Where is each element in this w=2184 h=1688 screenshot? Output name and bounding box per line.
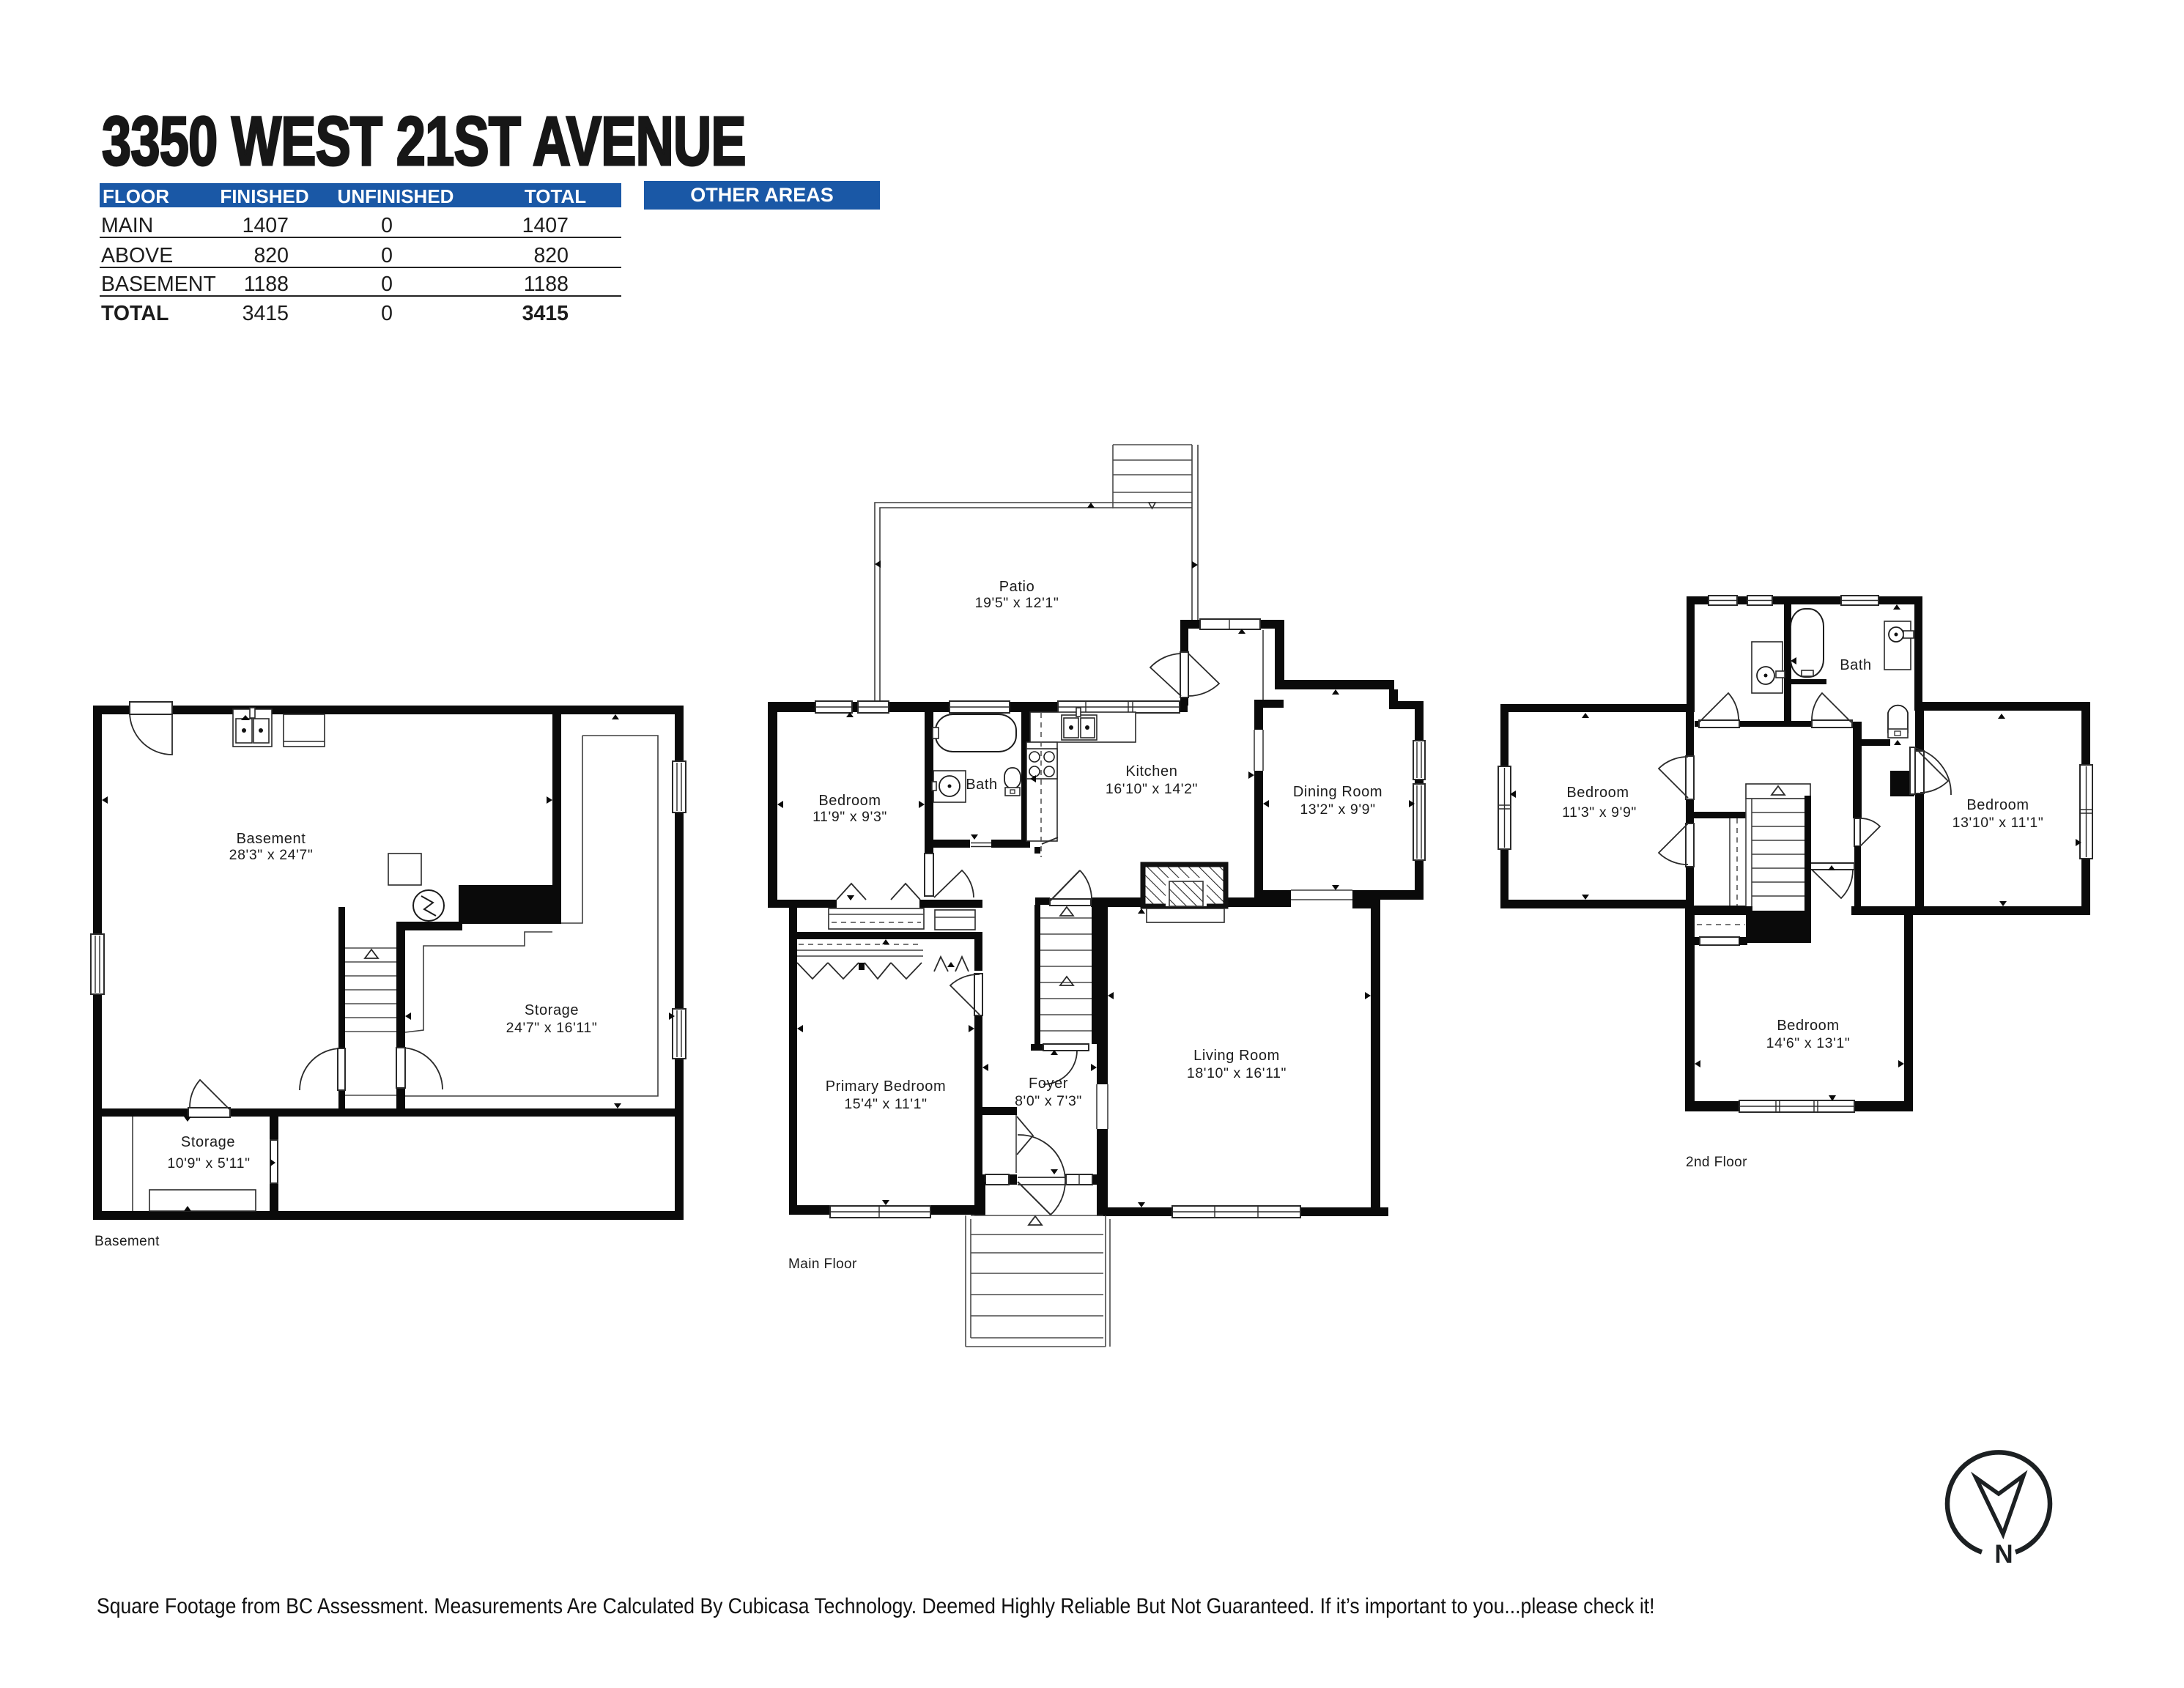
svg-text:Bedroom: Bedroom	[1566, 785, 1629, 801]
svg-text:18'10" x 16'11": 18'10" x 16'11"	[1187, 1065, 1287, 1081]
svg-text:Living Room: Living Room	[1193, 1048, 1280, 1064]
svg-text:16'10" x 14'2": 16'10" x 14'2"	[1106, 781, 1198, 797]
svg-text:Basement: Basement	[237, 831, 306, 847]
svg-text:Patio: Patio	[999, 579, 1035, 595]
svg-text:8'0" x 7'3": 8'0" x 7'3"	[1015, 1093, 1082, 1109]
svg-text:Main Floor: Main Floor	[788, 1256, 857, 1272]
svg-text:Foyer: Foyer	[1029, 1076, 1068, 1092]
svg-text:15'4" x 11'1": 15'4" x 11'1"	[844, 1096, 927, 1112]
svg-text:Bedroom: Bedroom	[818, 793, 881, 809]
svg-text:2nd Floor: 2nd Floor	[1686, 1155, 1747, 1170]
svg-text:Bath: Bath	[1840, 657, 1872, 673]
svg-text:Bath: Bath	[966, 777, 998, 793]
svg-text:Primary Bedroom: Primary Bedroom	[826, 1078, 947, 1095]
svg-text:13'2" x 9'9": 13'2" x 9'9"	[1300, 802, 1375, 818]
svg-text:N: N	[1994, 1540, 2013, 1569]
svg-text:11'3" x 9'9": 11'3" x 9'9"	[1562, 804, 1637, 821]
svg-text:19'5" x 12'1": 19'5" x 12'1"	[975, 595, 1059, 611]
svg-text:Bedroom: Bedroom	[1966, 797, 2029, 813]
svg-text:Bedroom: Bedroom	[1777, 1018, 1839, 1034]
svg-text:Dining Room: Dining Room	[1293, 784, 1382, 800]
svg-text:24'7" x 16'11": 24'7" x 16'11"	[506, 1020, 598, 1036]
svg-text:Storage: Storage	[181, 1134, 235, 1150]
svg-text:Kitchen: Kitchen	[1126, 763, 1178, 780]
svg-text:Storage: Storage	[525, 1002, 579, 1018]
svg-text:14'6" x 13'1": 14'6" x 13'1"	[1766, 1035, 1851, 1051]
svg-text:11'9" x 9'3": 11'9" x 9'3"	[812, 809, 887, 825]
svg-text:28'3" x 24'7": 28'3" x 24'7"	[229, 847, 314, 863]
svg-text:13'10" x 11'1": 13'10" x 11'1"	[1952, 815, 2044, 831]
svg-text:Basement: Basement	[95, 1234, 160, 1249]
svg-text:10'9" x 5'11": 10'9" x 5'11"	[167, 1155, 250, 1171]
